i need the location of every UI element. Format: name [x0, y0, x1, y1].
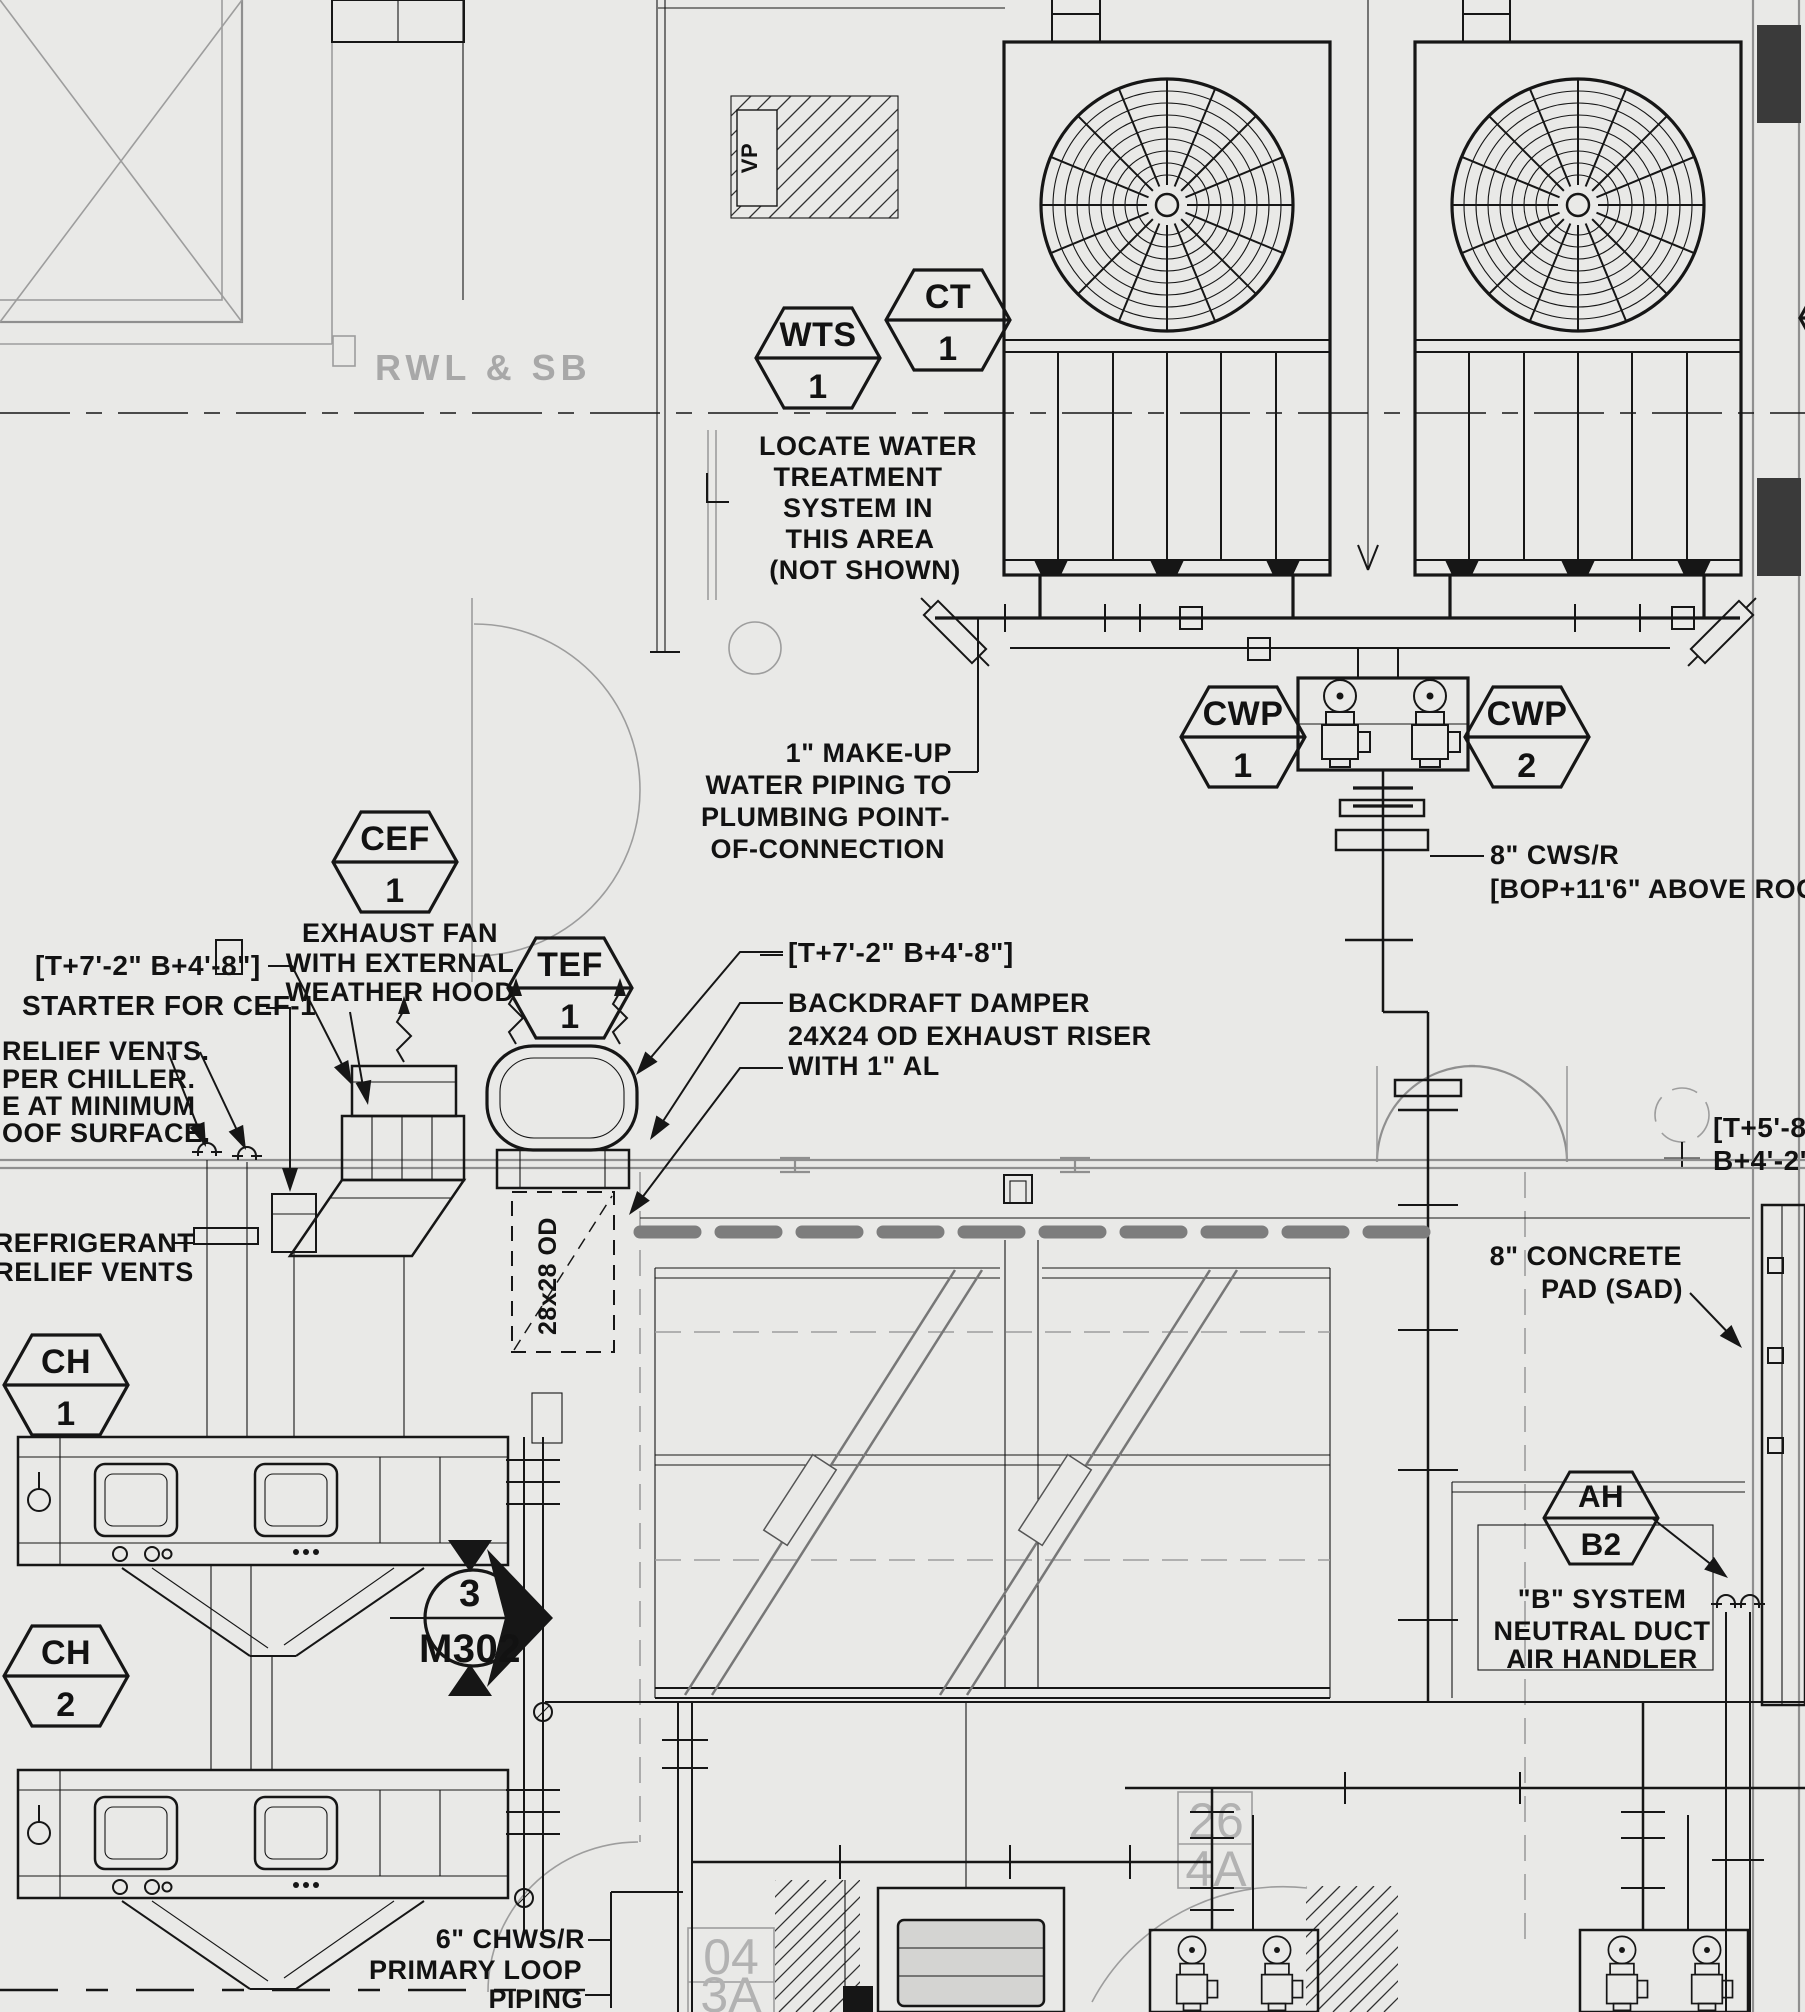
backdraft-note: BACKDRAFT DAMPER 24X24 OD EXHAUST RISER …: [788, 988, 1152, 1081]
note-line: 1" MAKE-UP: [786, 738, 952, 768]
bottom-pump-skid-2: [1580, 1930, 1748, 2012]
tag-ah-bottom: B2: [1581, 1527, 1622, 1562]
tag-ct-1: CT 1: [886, 270, 1010, 370]
tag-cwp2-bottom: 2: [1517, 747, 1536, 785]
refrigerant-relief-vents: [172, 1143, 262, 1437]
tag-tef-1: TEF 1: [508, 938, 632, 1038]
note-line: OOF SURFACE.: [2, 1118, 211, 1148]
tag-cef-top: CEF: [360, 820, 430, 858]
makeup-water-note: 1" MAKE-UP WATER PIPING TO PLUMBING POIN…: [701, 738, 952, 864]
relief-vents-note: RELIEF VENTS. PER CHILLER. E AT MINIMUM …: [2, 1036, 211, 1148]
tag-ch2-top: CH: [41, 1634, 91, 1672]
butterfly-valve-right: [1681, 591, 1763, 673]
condenser-water-piping: [914, 575, 1763, 772]
tag-cwp-2: CWP 2: [1465, 687, 1589, 787]
pump: [1607, 1936, 1648, 2010]
section-sheet: M302: [419, 1627, 521, 1671]
tag-ch-1: CH 1: [4, 1335, 128, 1435]
b-system-note: "B" SYSTEM NEUTRAL DUCT AIR HANDLER: [1494, 1584, 1711, 1674]
note-line: RELIEF VENTS.: [2, 1036, 210, 1066]
tag-tef-top: TEF: [537, 946, 603, 984]
tag-wts-1: WTS 1: [756, 308, 880, 408]
grid-reference-26-4a: 26 4A: [1178, 1792, 1252, 1897]
locate-water-note: LOCATE WATER TREATMENT SYSTEM IN THIS AR…: [759, 431, 977, 585]
note-line: EXHAUST FAN: [302, 918, 498, 948]
note-line: RELIEF VENTS: [0, 1257, 194, 1287]
tag-ct-bottom: 1: [938, 330, 957, 368]
tag-cwp-1: CWP 1: [1181, 687, 1305, 787]
tag-tef-bottom: 1: [560, 998, 579, 1036]
tag-cef-1: CEF 1: [333, 812, 457, 912]
note-line: REFRIGERANT: [0, 1228, 194, 1258]
air-handler-b2-unit: [1711, 1205, 1805, 2012]
mechanical-roof-plan: 26 4A 04 3A VP: [0, 0, 1805, 2012]
starter-note: STARTER FOR CEF-1: [22, 990, 316, 1021]
duct-size-label: 28x28 OD: [534, 1217, 562, 1335]
note-line: B+4'-2': [1713, 1145, 1805, 1176]
note-line: (NOT SHOWN): [769, 555, 960, 585]
chws-note: 6" CHWS/R PRIMARY LOOP PIPING: [369, 1924, 585, 2012]
tag-cwp2-top: CWP: [1487, 695, 1568, 733]
note-line: WATER PIPING TO: [705, 770, 952, 800]
leader-lines: [168, 952, 1748, 2008]
tag-cwp1-bottom: 1: [1233, 747, 1252, 785]
tag-ct-top: CT: [925, 278, 971, 316]
pump: [1177, 1936, 1218, 2010]
riser-drop-line: [1358, 0, 1378, 570]
note-line: SYSTEM IN: [783, 493, 933, 523]
grid-reference-04-3a: 04 3A: [688, 1928, 774, 2012]
concrete-pad-note: 8" CONCRETE PAD (SAD): [1490, 1241, 1683, 1304]
tag-ah-top: AH: [1578, 1479, 1624, 1514]
tower-top-piping: [1052, 0, 1510, 42]
note-line: 24X24 OD EXHAUST RISER: [788, 1021, 1152, 1051]
vp-label: VP: [737, 143, 762, 173]
bottom-pump-skid-1: [1150, 1930, 1318, 2012]
note-line: [BOP+11'6" ABOVE ROOF]: [1490, 874, 1805, 904]
tag-cef-bottom: 1: [385, 872, 404, 910]
note-line: PLUMBING POINT-: [701, 802, 950, 832]
note-line: 8" CONCRETE: [1490, 1241, 1682, 1271]
tag-ch-2: CH 2: [4, 1626, 128, 1726]
elevation-note-edge: [T+5'-8 B+4'-2': [1713, 1112, 1805, 1176]
tag-wts-top: WTS: [779, 316, 856, 354]
note-line: E AT MINIMUM: [2, 1091, 195, 1121]
note-line: PAD (SAD): [1541, 1274, 1683, 1304]
note-line: PRIMARY LOOP: [369, 1955, 582, 1985]
tag-wts-bottom: 1: [808, 368, 827, 406]
note-line: PIPING: [488, 1984, 583, 2012]
elevation-note-right: [T+7'-2" B+4'-8"]: [788, 937, 1014, 968]
cooling-tower-1: [1004, 42, 1330, 575]
note-line: OF-CONNECTION: [711, 834, 945, 864]
note-line: WITH 1" AL: [788, 1051, 940, 1081]
note-line: THIS AREA: [785, 524, 934, 554]
tag-ah-b2: AH B2: [1544, 1472, 1658, 1564]
section-number: 3: [459, 1573, 481, 1615]
note-line: 8" CWS/R: [1490, 840, 1619, 870]
note-line: AIR HANDLER: [1506, 1644, 1698, 1674]
note-line: LOCATE WATER: [759, 431, 977, 461]
grid-ref-3a: 3A: [700, 1967, 762, 2012]
condenser-pump-skid: [1298, 678, 1468, 770]
tag-ch2-bottom: 2: [56, 1686, 75, 1724]
chiller-interconnect: [211, 1565, 272, 1770]
tag-ch1-top: CH: [41, 1343, 91, 1381]
elevation-note-left: [T+7'-2" B+4'-8"]: [35, 950, 261, 981]
note-line: WITH EXTERNAL: [286, 948, 515, 978]
cws-note: 8" CWS/R [BOP+11'6" ABOVE ROOF]: [1490, 840, 1805, 904]
section-marker: 3 M302: [390, 1540, 553, 1696]
note-line: WEATHER HOOD: [286, 977, 515, 1007]
note-line: PER CHILLER.: [2, 1064, 196, 1094]
cooling-tower-fan-2: [1452, 79, 1704, 331]
note-line: 6" CHWS/R: [436, 1924, 585, 1954]
chiller-1: [18, 1437, 508, 1656]
rwl-sb-label: RWL & SB: [375, 347, 592, 388]
refrigerant-note: REFRIGERANT RELIEF VENTS: [0, 1228, 194, 1287]
bottom-center-unit: [843, 1702, 1064, 2012]
tag-ch1-bottom: 1: [56, 1395, 75, 1433]
hatched-equipment-pad: VP: [609, 96, 1011, 218]
tag-cwp1-top: CWP: [1203, 695, 1284, 733]
cooling-tower-2: [1415, 42, 1741, 575]
note-line: NEUTRAL DUCT: [1494, 1616, 1711, 1646]
hatch-area-bottom-right: [1180, 1886, 1510, 2012]
butterfly-valve-left: [914, 591, 996, 673]
tag-partial-right-edge: [1800, 268, 1805, 368]
chilled-water-piping: [506, 1437, 560, 1930]
exhaust-fan-note: EXHAUST FAN WITH EXTERNAL WEATHER HOOD: [286, 918, 515, 1007]
pump: [1262, 1936, 1303, 2010]
note-line: "B" SYSTEM: [1518, 1584, 1687, 1614]
note-line: [T+5'-8: [1713, 1112, 1805, 1143]
cooling-tower-fan-1: [1041, 79, 1293, 331]
note-line: BACKDRAFT DAMPER: [788, 988, 1090, 1018]
note-line: TREATMENT: [774, 462, 943, 492]
